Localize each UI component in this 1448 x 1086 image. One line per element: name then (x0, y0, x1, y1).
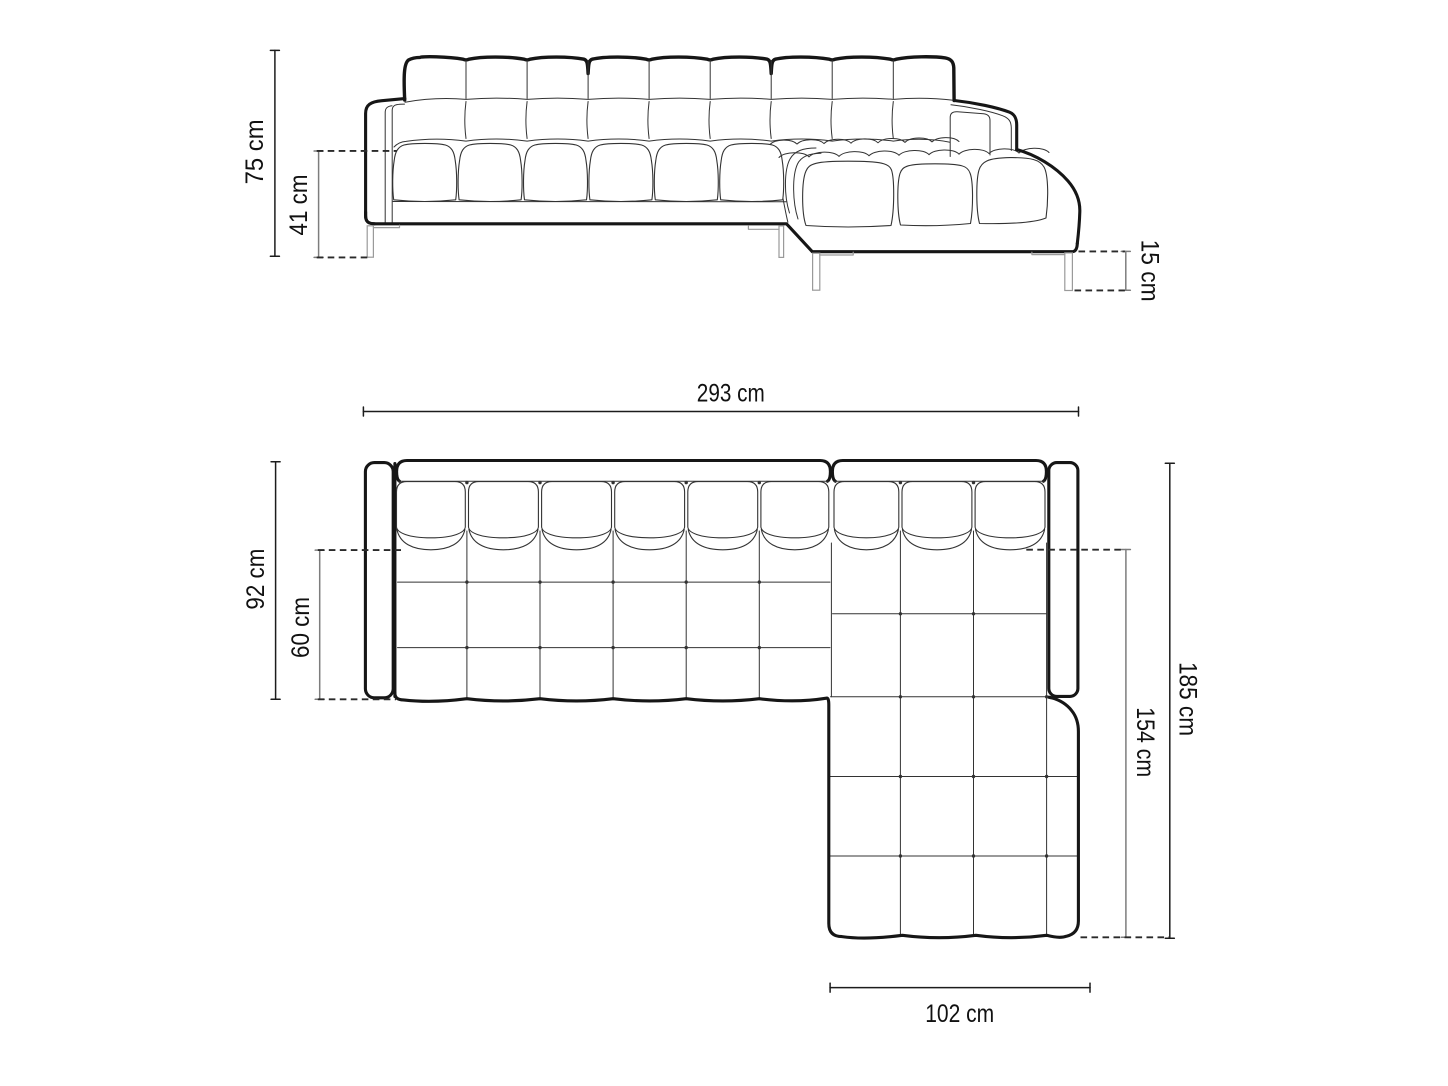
svg-text:41 cm: 41 cm (285, 175, 313, 236)
svg-text:293 cm: 293 cm (697, 379, 765, 407)
svg-text:185 cm: 185 cm (1174, 662, 1202, 736)
svg-text:60 cm: 60 cm (287, 597, 315, 658)
svg-text:15 cm: 15 cm (1136, 240, 1164, 302)
svg-text:92 cm: 92 cm (242, 549, 270, 610)
svg-text:102 cm: 102 cm (925, 1000, 994, 1028)
svg-text:75 cm: 75 cm (241, 119, 269, 184)
svg-text:154 cm: 154 cm (1131, 707, 1159, 777)
